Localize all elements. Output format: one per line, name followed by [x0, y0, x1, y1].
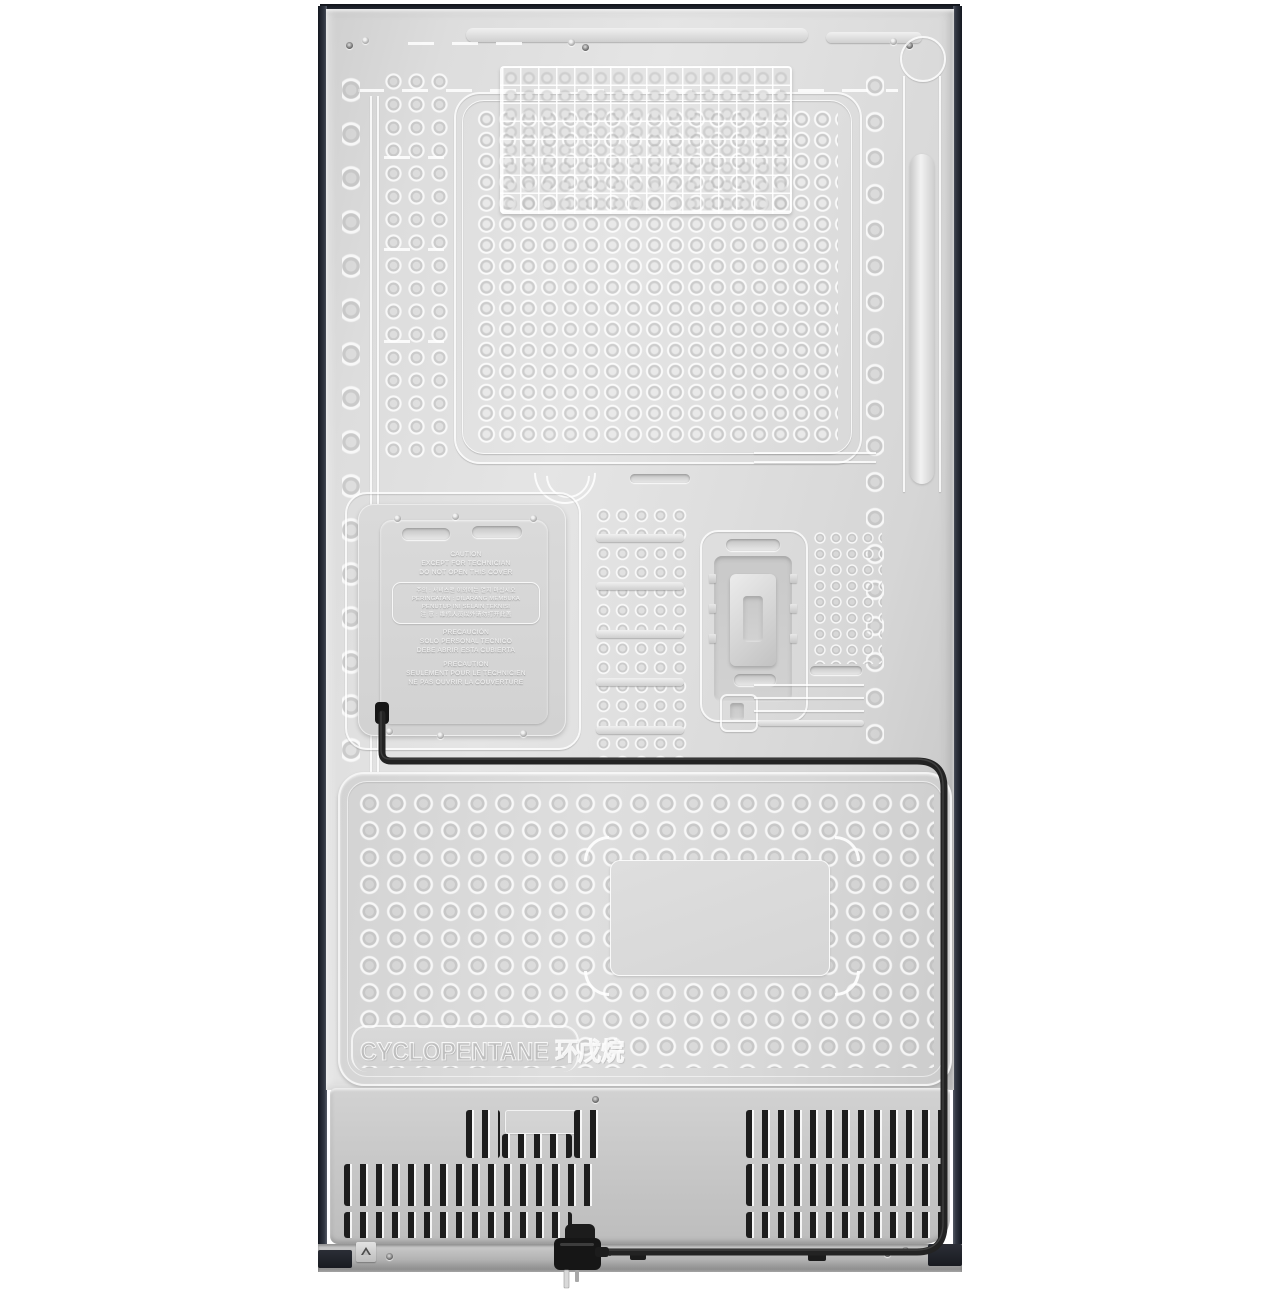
refrigerator-back: CAUTION EXCEPT FOR TECHNICIAN DO NOT OPE… — [318, 4, 962, 1280]
plug-cord-exit — [595, 1247, 609, 1257]
cable-path — [382, 714, 944, 1252]
cable-highlight — [381, 712, 943, 1250]
plug-body — [554, 1238, 601, 1270]
power-cable — [318, 4, 962, 1290]
plug-highlight — [560, 1243, 594, 1246]
plug-pin — [564, 1270, 569, 1288]
photo-background: CAUTION EXCEPT FOR TECHNICIAN DO NOT OPE… — [0, 0, 1280, 1280]
plug-pin — [575, 1270, 579, 1282]
